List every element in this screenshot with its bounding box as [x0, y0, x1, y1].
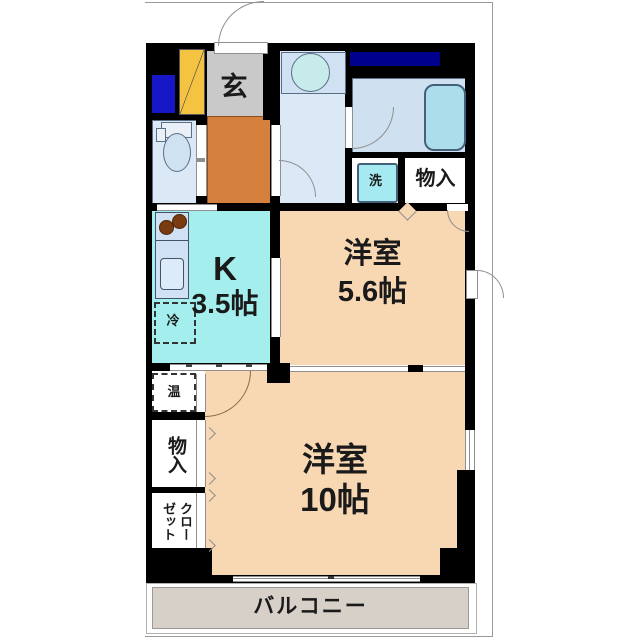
- wall-laundry-storage: [398, 152, 405, 205]
- heater-label: 温: [152, 385, 196, 400]
- room-divider-opening-left: [290, 366, 408, 372]
- opening-tick: [246, 364, 252, 367]
- heater-door: [196, 374, 206, 412]
- shoe-cabinet: [179, 49, 205, 115]
- room2-name-label: 洋室: [205, 441, 465, 479]
- toilet-bowl: [163, 133, 191, 172]
- toilet-door-tick: [197, 158, 205, 162]
- exterior-line-right: [492, 2, 493, 637]
- wall-room-divider-segment: [408, 365, 423, 372]
- floor-plan: 玄 洗 物入 K 3.5帖 冷 洋室 5.6帖 温 物入 クローゼット 洋室 1…: [0, 0, 640, 640]
- room-divider-opening-right: [423, 366, 465, 372]
- right-window-track: [469, 430, 470, 470]
- pipe-space-top: [350, 52, 440, 66]
- opening-tick: [186, 364, 192, 367]
- bathtub: [424, 84, 466, 151]
- entrance-door-arc: [218, 1, 264, 46]
- pipe-space-left: [152, 75, 175, 113]
- wall-heater-storage: [146, 412, 205, 420]
- balcony-window-tick: [328, 576, 334, 579]
- wall-pillar-center: [267, 363, 290, 383]
- kitchen-top-opening: [157, 204, 217, 211]
- wall-bath-bottom: [345, 152, 475, 158]
- balcony-window-track: [233, 578, 420, 579]
- room2-size-label: 10帖: [205, 481, 465, 519]
- storage-left-label: 物入: [158, 426, 186, 484]
- wall-left: [146, 43, 152, 583]
- exterior-line-bottom: [145, 636, 493, 637]
- laundry-label: 洗: [357, 174, 394, 189]
- balcony-label: バルコニー: [152, 595, 469, 619]
- kitchen-label-k: K: [170, 250, 280, 288]
- wall-pillar-bottomright: [440, 548, 475, 583]
- fridge-label: 冷: [154, 314, 192, 329]
- closet-label: クローゼット: [159, 497, 193, 545]
- wall-pillar-bottomleft: [146, 548, 212, 583]
- balcony-window: [233, 576, 420, 582]
- burner: [172, 214, 187, 229]
- wall-genkan-washroom: [263, 43, 280, 120]
- right-window: [465, 430, 475, 470]
- corridor: [207, 116, 272, 205]
- opening-tick: [216, 364, 222, 367]
- exterior-line-top: [145, 2, 493, 3]
- room1-size-label: 5.6帖: [280, 276, 465, 309]
- genkan-label: 玄: [205, 72, 263, 103]
- room1-name-label: 洋室: [280, 238, 465, 271]
- toilet-handle: [156, 128, 166, 142]
- right-exterior-door-arc: [477, 270, 504, 298]
- storage-top-label: 物入: [405, 168, 466, 191]
- sink-basin: [291, 53, 330, 92]
